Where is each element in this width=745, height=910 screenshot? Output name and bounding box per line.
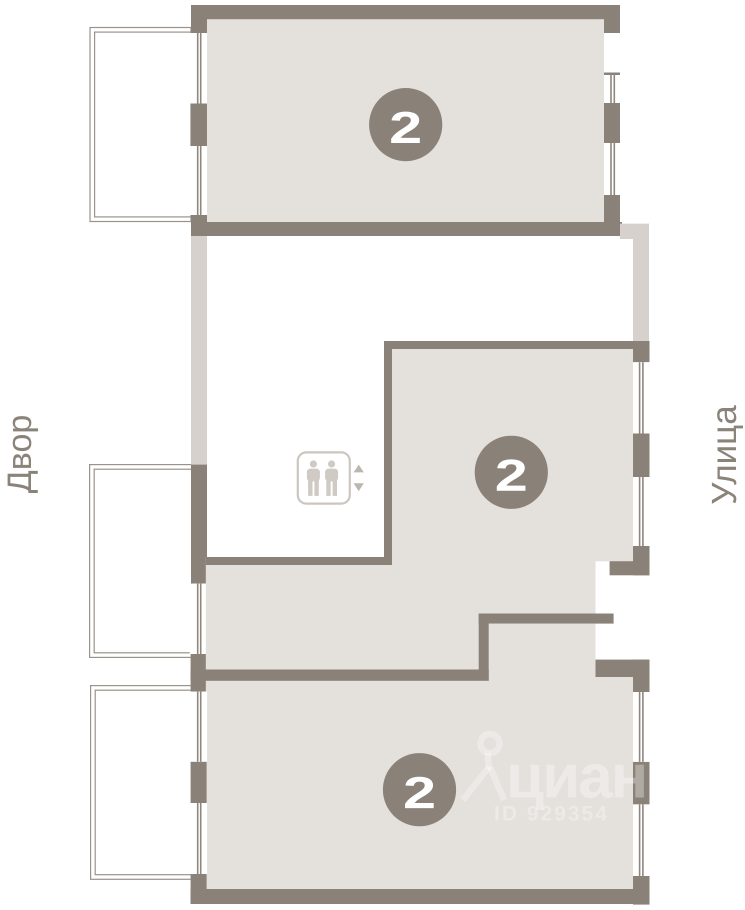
svg-text:циан: циан	[506, 743, 646, 812]
svg-text:Улица: Улица	[705, 405, 744, 505]
svg-text:2: 2	[389, 102, 422, 153]
svg-text:ID 929354: ID 929354	[494, 803, 609, 826]
svg-text:2: 2	[495, 450, 528, 501]
svg-text:Двор: Двор	[1, 415, 39, 494]
svg-text:2: 2	[403, 767, 436, 818]
